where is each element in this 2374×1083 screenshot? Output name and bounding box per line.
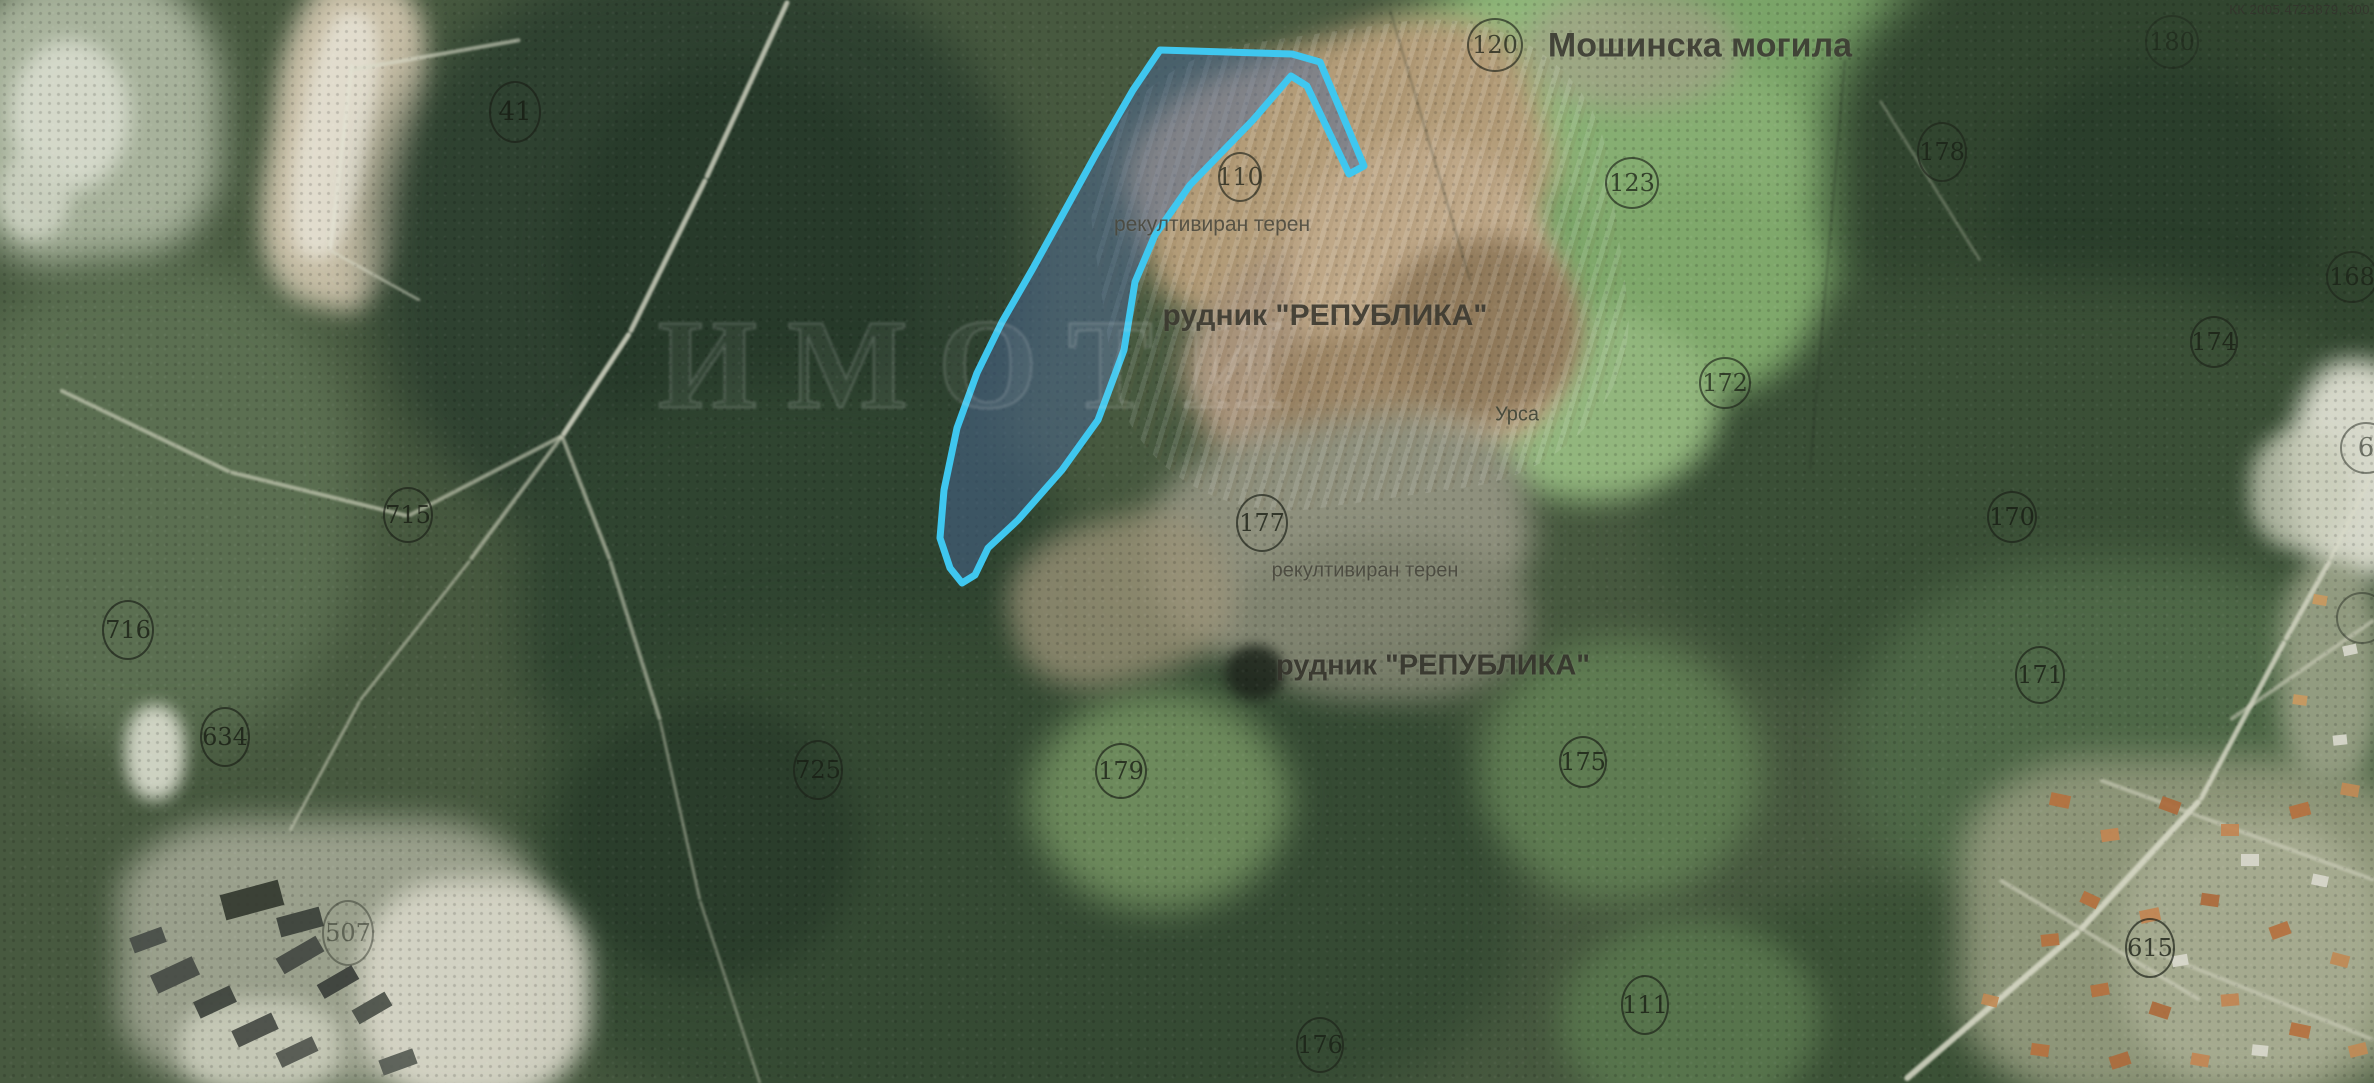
- parcel-marker-168: 168: [2326, 251, 2374, 303]
- area-label-rekultiviran-teren-1: рекултивиран терен: [1114, 213, 1310, 237]
- parcel-number: 174: [2191, 328, 2237, 356]
- parcel-number: 725: [795, 756, 841, 784]
- parcel-marker-123: 123: [1605, 157, 1659, 209]
- parcel-number: 180: [2149, 28, 2195, 56]
- parcel-number: 170: [1989, 503, 2035, 531]
- parcel-marker-180: 180: [2145, 15, 2199, 69]
- parcel-number: 123: [1609, 169, 1655, 197]
- satellite-map: ИМОТИ 4112018011012317817416861721701711…: [0, 0, 2374, 1083]
- parcel-marker-171: 171: [2015, 646, 2065, 704]
- parcel-number: 715: [385, 501, 431, 529]
- area-label-ursa: Урса: [1495, 404, 1539, 427]
- area-label-moshinska-mogila: Мошинска могила: [1548, 27, 1852, 66]
- parcel-number: 176: [1297, 1031, 1343, 1059]
- parcel-marker-179: 179: [1095, 743, 1147, 799]
- parcel-marker-175: 175: [1559, 736, 1607, 788]
- area-label-rudnik-republika-2: рудник "РЕПУБЛИКА": [1276, 650, 1590, 683]
- parcel-marker-507: 507: [322, 900, 374, 966]
- parcel-marker-715: 715: [383, 487, 433, 543]
- parcel-marker-41: 41: [489, 81, 541, 143]
- parcel-marker-110: 110: [1218, 152, 1262, 202]
- parcel-number: 507: [325, 919, 371, 947]
- parcel-marker-174: 174: [2190, 316, 2238, 368]
- parcel-marker-172: 172: [1699, 357, 1751, 409]
- parcel-number: 41: [498, 97, 531, 127]
- parcel-number: 179: [1098, 757, 1144, 785]
- parcel-marker-615: 615: [2125, 918, 2175, 978]
- parcel-number: 120: [1472, 31, 1518, 59]
- parcel-marker-716: 716: [102, 600, 154, 660]
- area-label-rekultiviran-teren-2: рекултивиран терен: [1272, 560, 1459, 583]
- parcel-number: 178: [1919, 138, 1965, 166]
- parcel-number: 177: [1239, 509, 1285, 537]
- parcel-marker-111: 111: [1621, 975, 1669, 1035]
- parcel-marker-170: 170: [1987, 491, 2037, 543]
- parcel-number: 615: [2127, 934, 2173, 962]
- parcel-marker-634: 634: [200, 707, 250, 767]
- area-label-rudnik-republika-1: рудник "РЕПУБЛИКА": [1163, 299, 1488, 333]
- parcel-number: 6: [2358, 433, 2374, 463]
- parcel-marker-176: 176: [1296, 1017, 1344, 1073]
- parcel-marker-178: 178: [1917, 122, 1967, 182]
- parcel-number: 716: [105, 616, 151, 644]
- parcel-number: 175: [1560, 748, 1606, 776]
- parcel-marker-177: 177: [1236, 494, 1288, 552]
- parcel-number: 110: [1217, 163, 1263, 191]
- parcel-number: 634: [202, 723, 248, 751]
- parcel-number: 171: [2017, 661, 2063, 689]
- parcel-marker-725: 725: [793, 740, 843, 800]
- parcel-number: 168: [2329, 263, 2374, 291]
- parcel-number: 172: [1702, 369, 1748, 397]
- map-reference-stamp: КК 2005 4723879, 300: [2229, 2, 2370, 17]
- parcel-marker-120: 120: [1467, 18, 1523, 72]
- parcel-number: 111: [1622, 991, 1668, 1019]
